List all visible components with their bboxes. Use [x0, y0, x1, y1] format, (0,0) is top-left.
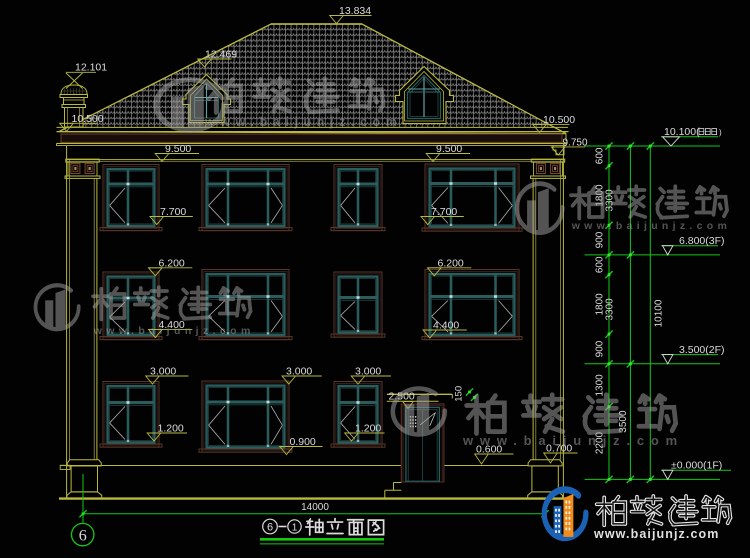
- svg-text:14000: 14000: [301, 502, 329, 513]
- svg-text:9.500: 9.500: [436, 143, 462, 155]
- svg-text:3300: 3300: [605, 298, 616, 321]
- svg-text:6.800(3F): 6.800(3F): [679, 235, 725, 247]
- svg-text:1: 1: [292, 522, 298, 533]
- svg-text:10.500: 10.500: [543, 114, 575, 126]
- svg-text:www.baijunjz.com: www.baijunjz.com: [593, 527, 719, 541]
- svg-text:6: 6: [267, 522, 273, 534]
- svg-text:9.500: 9.500: [165, 143, 191, 155]
- svg-text:10100: 10100: [653, 299, 664, 327]
- svg-text:12.469: 12.469: [205, 49, 237, 61]
- svg-text:1.200: 1.200: [355, 423, 381, 435]
- svg-text:6.200: 6.200: [159, 257, 185, 269]
- svg-text:150: 150: [454, 386, 465, 402]
- svg-text:3.000: 3.000: [150, 366, 176, 378]
- svg-text:1300: 1300: [595, 374, 606, 397]
- svg-text:3.000: 3.000: [286, 366, 312, 378]
- svg-text:10.100(: 10.100(: [664, 126, 700, 138]
- svg-text:3.500(2F): 3.500(2F): [679, 344, 725, 356]
- svg-text:6.200: 6.200: [438, 257, 464, 269]
- svg-text:6: 6: [79, 528, 87, 545]
- svg-text:4.400: 4.400: [433, 320, 459, 332]
- svg-text:12.101: 12.101: [75, 61, 107, 73]
- svg-text:7.700: 7.700: [431, 206, 457, 218]
- svg-text:www.baijunjz.com: www.baijunjz.com: [93, 325, 255, 337]
- svg-text:9.750: 9.750: [563, 137, 588, 148]
- svg-text:www.baijunjz.com: www.baijunjz.com: [571, 220, 731, 232]
- svg-text:1.200: 1.200: [158, 423, 184, 435]
- svg-text:): ): [719, 128, 722, 137]
- svg-text:900: 900: [595, 231, 606, 248]
- svg-text:600: 600: [595, 256, 606, 273]
- svg-text:3.000: 3.000: [355, 366, 381, 378]
- svg-text:10.500: 10.500: [72, 113, 104, 125]
- svg-text:7.700: 7.700: [160, 206, 186, 218]
- svg-text:600: 600: [595, 147, 606, 164]
- svg-text:www.baijunjz.com: www.baijunjz.com: [462, 433, 684, 448]
- svg-text:±0.000(1F): ±0.000(1F): [671, 459, 722, 471]
- svg-text:13.834: 13.834: [339, 5, 371, 17]
- svg-text:www.baijunjz.com: www.baijunjz.com: [204, 115, 402, 129]
- svg-text:0.900: 0.900: [290, 436, 316, 448]
- svg-text:900: 900: [595, 340, 606, 357]
